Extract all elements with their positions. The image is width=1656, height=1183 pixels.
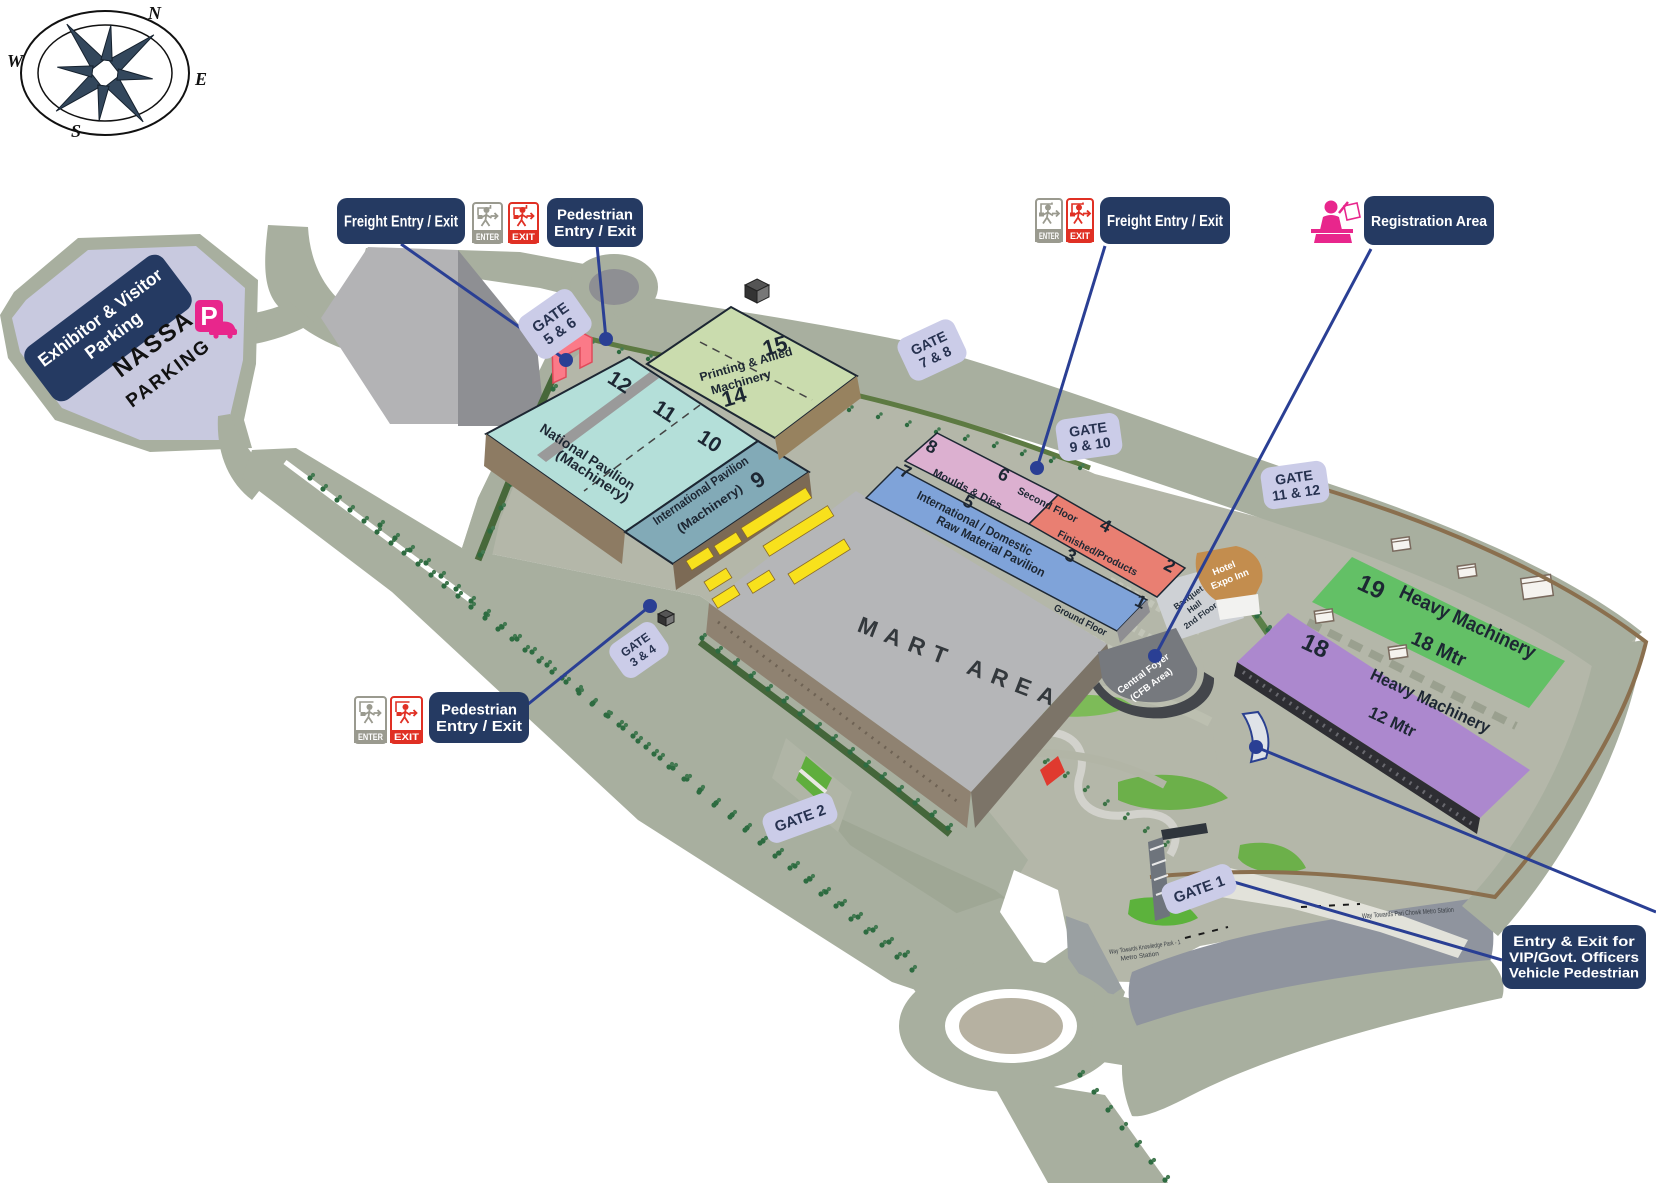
svg-text:Vehicle Pedestrian: Vehicle Pedestrian	[1509, 965, 1639, 981]
svg-text:ENTER: ENTER	[1039, 231, 1059, 242]
svg-text:Entry & Exit for: Entry & Exit for	[1513, 933, 1635, 949]
svg-text:Freight Entry / Exit: Freight Entry / Exit	[344, 214, 459, 231]
svg-text:VIP/Govt. Officers: VIP/Govt. Officers	[1509, 949, 1639, 965]
svg-text:E: E	[194, 69, 207, 89]
svg-text:EXIT: EXIT	[394, 732, 419, 743]
svg-text:EXIT: EXIT	[512, 232, 535, 243]
svg-text:ENTER: ENTER	[358, 732, 383, 743]
svg-text:N: N	[147, 3, 162, 23]
svg-text:Freight Entry / Exit: Freight Entry / Exit	[1107, 213, 1224, 230]
svg-text:EXIT: EXIT	[1070, 231, 1090, 242]
svg-text:S: S	[71, 121, 81, 141]
svg-text:Registration Area: Registration Area	[1371, 213, 1488, 230]
svg-text:Pedestrian: Pedestrian	[557, 206, 633, 223]
svg-text:Entry / Exit: Entry / Exit	[436, 718, 522, 735]
svg-text:W: W	[7, 51, 25, 71]
svg-text:ENTER: ENTER	[476, 232, 499, 243]
svg-text:Entry / Exit: Entry / Exit	[554, 223, 636, 240]
svg-text:Pedestrian: Pedestrian	[441, 701, 517, 718]
